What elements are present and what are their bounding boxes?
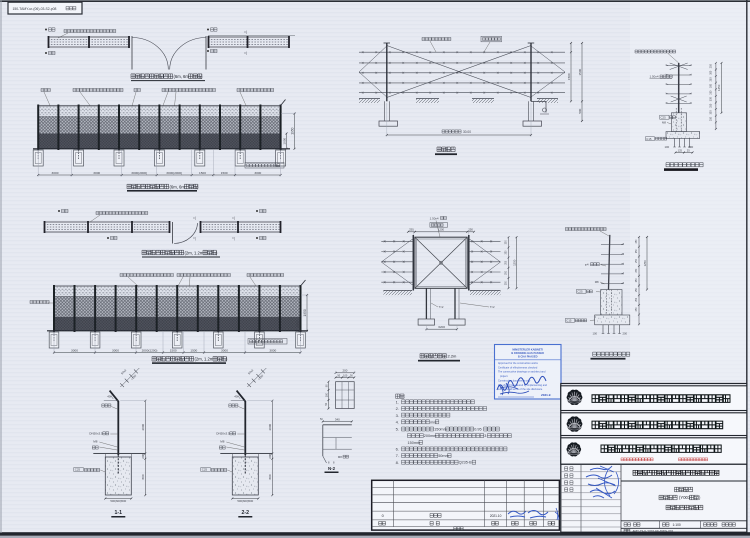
svg-text:125: 125	[678, 148, 683, 152]
svg-text:200: 200	[268, 453, 272, 458]
svg-text:800: 800	[141, 474, 145, 479]
svg-text:1.50x4: 1.50x4	[650, 75, 659, 79]
svg-text:=|: =|	[244, 30, 247, 34]
svg-text:1950: 1950	[290, 127, 294, 134]
svg-text:7.: 7.	[396, 453, 399, 458]
svg-text:this should be ensured by impl: this should be ensured by implementing a…	[498, 384, 548, 387]
svg-text:100: 100	[665, 145, 670, 149]
svg-text:B DRAWING HAS PASSED: B DRAWING HAS PASSED	[511, 351, 544, 355]
svg-text:2.2m: 2.2m	[448, 354, 458, 359]
svg-text:DN50x3.5: DN50x3.5	[89, 432, 103, 436]
svg-text:150mm: 150mm	[434, 428, 447, 432]
svg-text:The consecutive drawings on ar: The consecutive drawings on architect an…	[498, 371, 546, 374]
svg-text:3.: 3.	[396, 413, 399, 418]
svg-text:1500: 1500	[170, 348, 177, 352]
svg-text:B CHA PHASED: B CHA PHASED	[518, 354, 538, 358]
svg-text:1-1: 1-1	[115, 510, 123, 516]
svg-text:3000: 3000	[254, 171, 261, 175]
svg-text:=|: =|	[232, 216, 235, 220]
svg-text:Certificate of effectiveness c: Certificate of effectiveness checked	[498, 366, 538, 369]
svg-text:C25: C25	[577, 290, 583, 294]
svg-text:3: 3	[484, 434, 486, 438]
svg-text:500(600)500: 500(600)500	[110, 499, 126, 503]
svg-text:200: 200	[342, 369, 347, 373]
svg-text:6200: 6200	[438, 325, 445, 329]
svg-text:=|: =|	[193, 237, 196, 241]
svg-text:2000: 2000	[141, 423, 145, 430]
svg-text:150mm: 150mm	[408, 441, 421, 445]
svg-text:300: 300	[710, 110, 713, 115]
svg-text:1:100: 1:100	[673, 523, 681, 527]
svg-text:M8: M8	[338, 455, 342, 459]
svg-text:45°: 45°	[107, 395, 112, 399]
svg-text:250: 250	[710, 103, 713, 108]
svg-text:=|: =|	[232, 237, 235, 241]
svg-text:C25: C25	[202, 468, 208, 472]
svg-text:2.: 2.	[396, 406, 399, 411]
svg-text:1250: 1250	[643, 260, 647, 267]
svg-text:5.: 5.	[396, 427, 399, 432]
svg-text:250: 250	[710, 64, 713, 69]
svg-text:3000: 3000	[93, 171, 100, 175]
svg-text:150-TAMY-ur-(06)-03-S2-p08: 150-TAMY-ur-(06)-03-S2-p08	[13, 7, 57, 11]
svg-text:M8: M8	[220, 440, 224, 444]
svg-text:30.00: 30.00	[463, 130, 471, 134]
svg-text:100: 100	[593, 332, 598, 336]
svg-text:1.: 1.	[396, 400, 399, 405]
svg-text:Construction documents only: Construction documents only	[498, 379, 531, 382]
svg-text:3000: 3000	[269, 348, 276, 352]
svg-text:2-2: 2-2	[242, 510, 250, 516]
svg-text:1950: 1950	[303, 309, 307, 316]
svg-text:1200: 1200	[438, 228, 444, 232]
svg-text:1500: 1500	[578, 68, 582, 75]
svg-text:3000(2000): 3000(2000)	[166, 171, 182, 175]
svg-text:3000: 3000	[71, 348, 78, 352]
svg-text:500(600)500: 500(600)500	[237, 499, 253, 503]
svg-text:200: 200	[689, 145, 694, 149]
svg-text:M8: M8	[595, 280, 599, 284]
svg-text:(Y001: (Y001	[679, 495, 691, 500]
svg-text:3000: 3000	[221, 348, 228, 352]
svg-text:300: 300	[710, 83, 713, 88]
svg-text:0.95: 0.95	[474, 428, 481, 432]
svg-text:3000: 3000	[52, 171, 59, 175]
svg-text:1500: 1500	[567, 73, 571, 80]
svg-text:(6m, 6m: (6m, 6m	[170, 184, 186, 189]
svg-text:C15: C15	[566, 319, 572, 323]
svg-text:500: 500	[578, 108, 582, 113]
svg-text:project.: project.	[500, 375, 509, 378]
svg-text:Approved for the construction: Approved for the construction works	[498, 362, 539, 365]
svg-text:=|: =|	[244, 51, 247, 55]
svg-text:8.: 8.	[396, 460, 399, 465]
svg-text:4.: 4.	[396, 420, 399, 425]
svg-text:AMY-73-U-Y001-FF-DWG-001: AMY-73-U-Y001-FF-DWG-001	[633, 529, 674, 533]
svg-text:M8: M8	[93, 440, 97, 444]
svg-text:200: 200	[623, 332, 628, 336]
svg-text:DN50x3.5: DN50x3.5	[216, 432, 230, 436]
svg-text:50mm: 50mm	[438, 454, 449, 458]
svg-text:=|: =|	[193, 216, 196, 220]
svg-text:2000(1200): 2000(1200)	[142, 348, 158, 352]
svg-text:N-2: N-2	[328, 466, 336, 471]
svg-text:1500: 1500	[190, 348, 197, 352]
svg-text:2021.9: 2021.9	[541, 393, 551, 397]
svg-text:1.50x4: 1.50x4	[430, 216, 439, 220]
svg-text:MINISTERLER KABINETI: MINISTERLER KABINETI	[512, 347, 543, 351]
svg-text:100: 100	[325, 392, 328, 397]
svg-text:1000: 1000	[282, 137, 286, 144]
svg-text:100: 100	[343, 374, 348, 377]
svg-text:T=2: T=2	[490, 305, 495, 309]
svg-text:0: 0	[382, 514, 384, 518]
svg-text:250: 250	[710, 116, 713, 121]
svg-text:3000(2000): 3000(2000)	[131, 171, 147, 175]
svg-text:C15: C15	[646, 137, 652, 141]
svg-text:300: 300	[710, 70, 713, 75]
svg-text:800: 800	[268, 474, 272, 479]
svg-text:1250: 1250	[512, 259, 516, 266]
svg-text:T=2: T=2	[439, 305, 444, 309]
svg-text:(2m, 1.2m: (2m, 1.2m	[195, 357, 214, 362]
svg-text:200mm: 200mm	[424, 434, 437, 438]
svg-text:C25: C25	[661, 115, 667, 119]
svg-text:φ4: φ4	[585, 262, 589, 266]
svg-text:250: 250	[710, 90, 713, 95]
svg-text:3000: 3000	[112, 348, 119, 352]
svg-text:C25: C25	[75, 468, 81, 472]
svg-text:(2m, 1.2m: (2m, 1.2m	[185, 250, 204, 255]
svg-text::: :	[404, 394, 405, 399]
svg-text:300: 300	[710, 97, 713, 102]
svg-text:Q235-B: Q235-B	[459, 461, 473, 465]
svg-text:1500: 1500	[199, 171, 206, 175]
svg-text:1500: 1500	[221, 171, 228, 175]
svg-text:250: 250	[468, 228, 473, 232]
svg-text:200: 200	[141, 453, 145, 458]
svg-text:M8: M8	[662, 120, 666, 124]
svg-text:6.: 6.	[396, 447, 399, 452]
svg-text:2021.10: 2021.10	[490, 514, 502, 518]
svg-text:340: 340	[335, 417, 340, 421]
svg-text:1250: 1250	[717, 84, 721, 91]
svg-text:45°: 45°	[234, 395, 239, 399]
svg-text:250: 250	[710, 77, 713, 82]
svg-text:2000: 2000	[268, 423, 272, 430]
svg-text:(6m, 6m: (6m, 6m	[174, 74, 190, 79]
svg-text:1000: 1000	[295, 320, 299, 327]
